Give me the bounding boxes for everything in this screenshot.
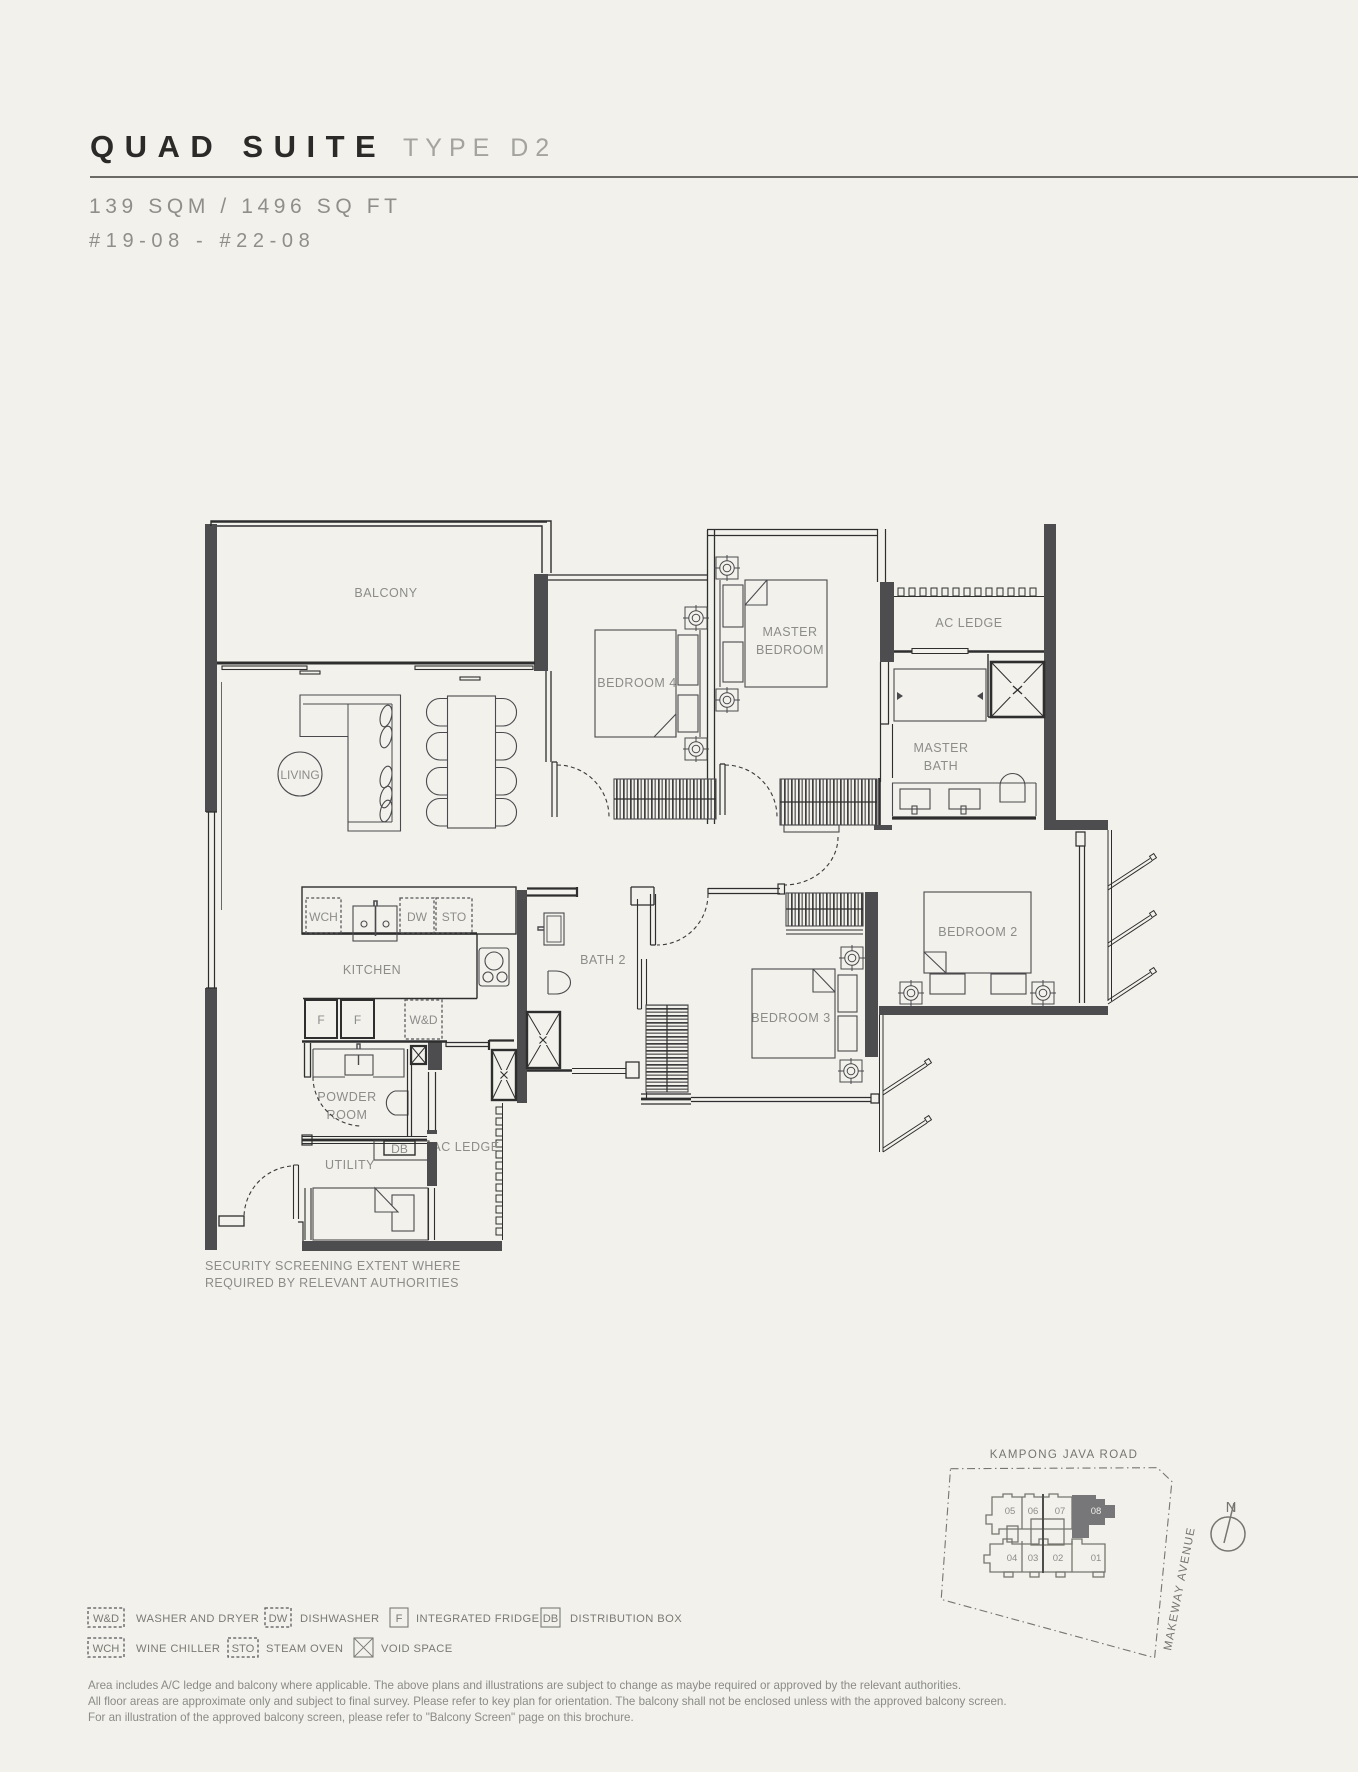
- svg-text:VOID SPACE: VOID SPACE: [381, 1643, 453, 1655]
- svg-text:08: 08: [1091, 1506, 1102, 1517]
- svg-text:DISTRIBUTION BOX: DISTRIBUTION BOX: [570, 1613, 682, 1625]
- svg-text:WCH: WCH: [309, 910, 338, 924]
- svg-text:01: 01: [1091, 1553, 1102, 1564]
- svg-text:LIVING: LIVING: [280, 768, 319, 782]
- svg-text:ROOM: ROOM: [327, 1108, 368, 1122]
- svg-text:DW: DW: [407, 910, 428, 924]
- svg-text:REQUIRED BY RELEVANT AUTHORITI: REQUIRED BY RELEVANT AUTHORITIES: [205, 1276, 459, 1290]
- svg-text:STO: STO: [232, 1643, 255, 1655]
- svg-text:KITCHEN: KITCHEN: [343, 963, 401, 977]
- svg-text:BEDROOM 2: BEDROOM 2: [938, 925, 1018, 939]
- svg-text:TYPE D2: TYPE D2: [403, 134, 556, 162]
- svg-text:W&D: W&D: [410, 1013, 438, 1027]
- svg-text:BATH 2: BATH 2: [580, 953, 626, 967]
- svg-text:MASTER: MASTER: [913, 741, 968, 755]
- svg-text:For an illustration of the app: For an illustration of the approved balc…: [88, 1711, 634, 1724]
- svg-text:07: 07: [1055, 1506, 1066, 1517]
- svg-text:05: 05: [1005, 1506, 1016, 1517]
- svg-text:All floor areas are approximat: All floor areas are approximate only and…: [88, 1695, 1007, 1708]
- svg-text:03: 03: [1028, 1553, 1039, 1564]
- svg-text:BATH: BATH: [924, 759, 958, 773]
- svg-text:BEDROOM 4: BEDROOM 4: [597, 676, 677, 690]
- svg-text:SECURITY SCREENING EXTENT WHER: SECURITY SCREENING EXTENT WHERE: [205, 1259, 461, 1273]
- svg-text:02: 02: [1053, 1553, 1064, 1564]
- svg-text:DISHWASHER: DISHWASHER: [300, 1613, 379, 1625]
- svg-text:WINE CHILLER: WINE CHILLER: [136, 1643, 220, 1655]
- svg-text:UTILITY: UTILITY: [325, 1158, 375, 1172]
- svg-text:F: F: [317, 1013, 324, 1027]
- svg-text:WASHER AND DRYER: WASHER AND DRYER: [136, 1613, 259, 1625]
- svg-text:POWDER: POWDER: [317, 1090, 376, 1104]
- svg-text:W&D: W&D: [93, 1613, 119, 1625]
- svg-text:WCH: WCH: [93, 1643, 120, 1655]
- svg-text:BEDROOM 3: BEDROOM 3: [751, 1011, 831, 1025]
- svg-text:MASTER: MASTER: [762, 625, 817, 639]
- svg-text:139 SQM / 1496 SQ FT: 139 SQM / 1496 SQ FT: [89, 195, 402, 218]
- svg-text:INTEGRATED FRIDGE: INTEGRATED FRIDGE: [416, 1613, 539, 1625]
- svg-text:Area includes A/C ledge and ba: Area includes A/C ledge and balcony wher…: [88, 1679, 961, 1692]
- svg-text:#19-08 - #22-08: #19-08 - #22-08: [89, 230, 315, 252]
- svg-text:04: 04: [1007, 1553, 1018, 1564]
- svg-text:QUAD SUITE: QUAD SUITE: [90, 129, 386, 164]
- svg-text:DB: DB: [543, 1613, 559, 1625]
- svg-text:STEAM OVEN: STEAM OVEN: [266, 1643, 343, 1655]
- svg-text:AC LEDGE: AC LEDGE: [935, 616, 1002, 630]
- svg-text:DW: DW: [269, 1613, 288, 1625]
- svg-text:AC LEDGE: AC LEDGE: [432, 1140, 499, 1154]
- svg-text:KAMPONG JAVA ROAD: KAMPONG JAVA ROAD: [990, 1449, 1139, 1461]
- svg-text:DB: DB: [391, 1142, 408, 1156]
- svg-text:BEDROOM: BEDROOM: [756, 643, 824, 657]
- svg-text:STO: STO: [442, 910, 466, 924]
- svg-text:BALCONY: BALCONY: [354, 586, 417, 600]
- svg-text:F: F: [396, 1613, 403, 1625]
- svg-text:06: 06: [1028, 1506, 1039, 1517]
- svg-text:F: F: [354, 1013, 361, 1027]
